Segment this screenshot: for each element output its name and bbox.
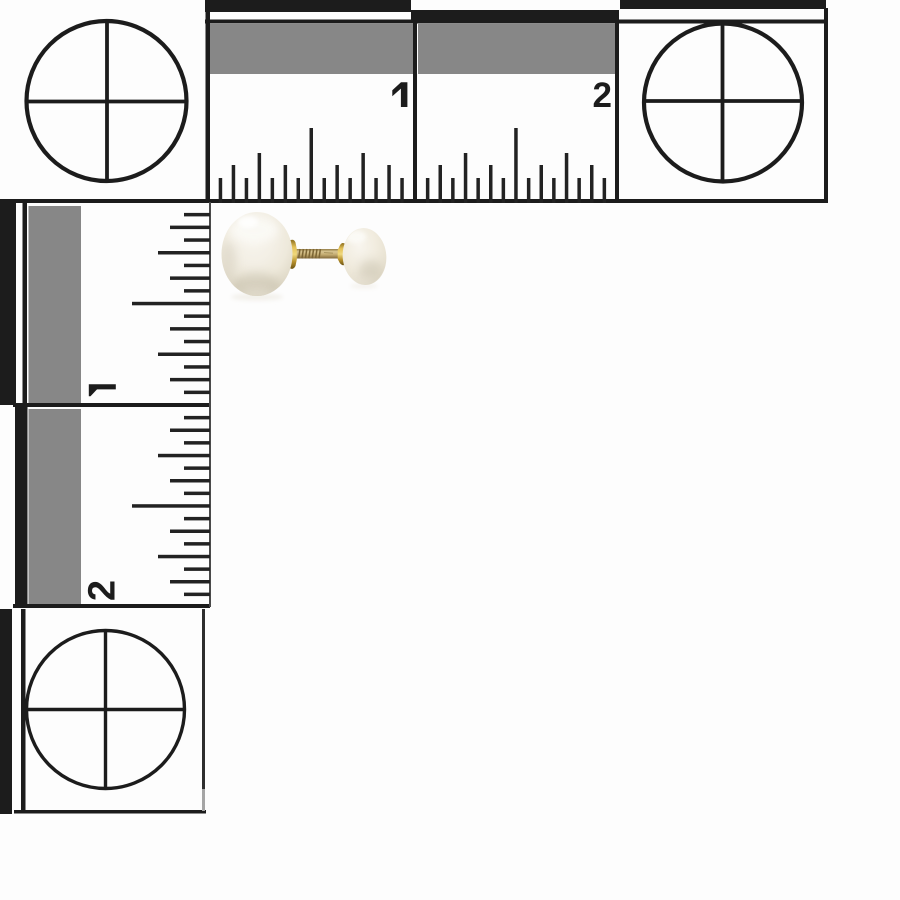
svg-text:2: 2 bbox=[593, 76, 612, 115]
svg-text:2: 2 bbox=[82, 580, 124, 601]
